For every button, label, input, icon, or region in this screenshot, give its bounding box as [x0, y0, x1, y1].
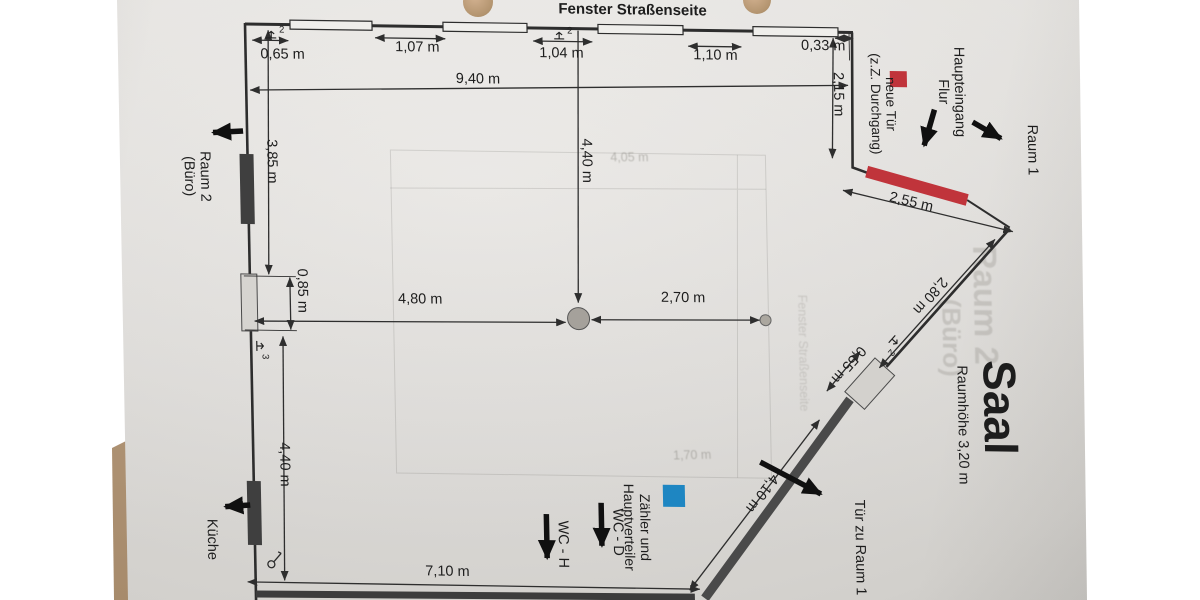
outlet-icon: 3 — [255, 340, 266, 359]
street-side-title: Fenster Straßenseite — [552, 1, 712, 19]
door-raum2 — [241, 274, 258, 331]
arrow-wc-h — [546, 514, 547, 558]
label-zaehler: Zähler und Hauptverteiler — [621, 472, 655, 582]
dim-label-104: 1,04 m — [526, 45, 596, 62]
label-haupteingang-flur: Haupteingang Flur — [932, 32, 968, 152]
dim-label-065: 0,65 m — [247, 46, 317, 63]
dim-label-480: 4,80 m — [385, 291, 455, 308]
arrow-raum1 — [973, 122, 1001, 138]
dim-label-385: 3,85 m — [263, 128, 280, 194]
extension-lines — [239, 24, 855, 339]
outlet-icon: 2 — [553, 29, 573, 40]
label-wc-d: WC - D — [609, 502, 626, 562]
label-wc-h: WC - H — [554, 514, 571, 574]
outlet-icon: 2 — [265, 28, 285, 39]
column — [567, 307, 589, 329]
photo-of-floor-plan: Fenster Straßenseite Raum 2 (Büro) 4,05 … — [0, 0, 1200, 600]
wall-to-raum1-dark — [701, 397, 854, 600]
dim-label-440-left: 4,40 m — [276, 431, 293, 497]
label-tuer-zu-raum1: Tür zu Raum 1 — [851, 487, 869, 600]
label-neue-tuer: neue Tür (z.Z. Durchgang) — [867, 37, 900, 171]
label-raumhoehe: Raumhöhe 3,20 m — [953, 355, 972, 495]
dim-label-215: 2,15 m — [830, 59, 847, 129]
arrow-raum2 — [213, 131, 243, 133]
label-raum1: Raum 1 — [1024, 114, 1041, 186]
light-switch-symbol — [268, 552, 282, 568]
label-kueche: Küche — [203, 509, 220, 569]
dim-label-710: 7,10 m — [412, 563, 482, 580]
label-saal: Saal — [973, 346, 1027, 469]
measure-point — [760, 315, 771, 326]
distribution-board-marker — [663, 485, 685, 507]
door-kueche-dark — [247, 481, 262, 545]
dim-label-085: 0,85 m — [293, 258, 310, 324]
dim-label-033: 0,33 m — [791, 38, 855, 55]
dim-label-440-mid: 4,40 m — [578, 128, 595, 194]
dim-label-940: 9,40 m — [443, 71, 513, 88]
dim-label-110: 1,10 m — [680, 47, 750, 64]
arrow-wc-d — [601, 503, 602, 546]
bottom-wall — [256, 591, 695, 600]
left-wall-dark-element — [239, 154, 254, 224]
dim-label-270: 2,70 m — [648, 290, 718, 307]
dim-label-107: 1,07 m — [382, 39, 452, 56]
arrow-kueche — [225, 505, 250, 507]
label-raum2-buero: Raum 2 (Büro) — [178, 141, 213, 211]
